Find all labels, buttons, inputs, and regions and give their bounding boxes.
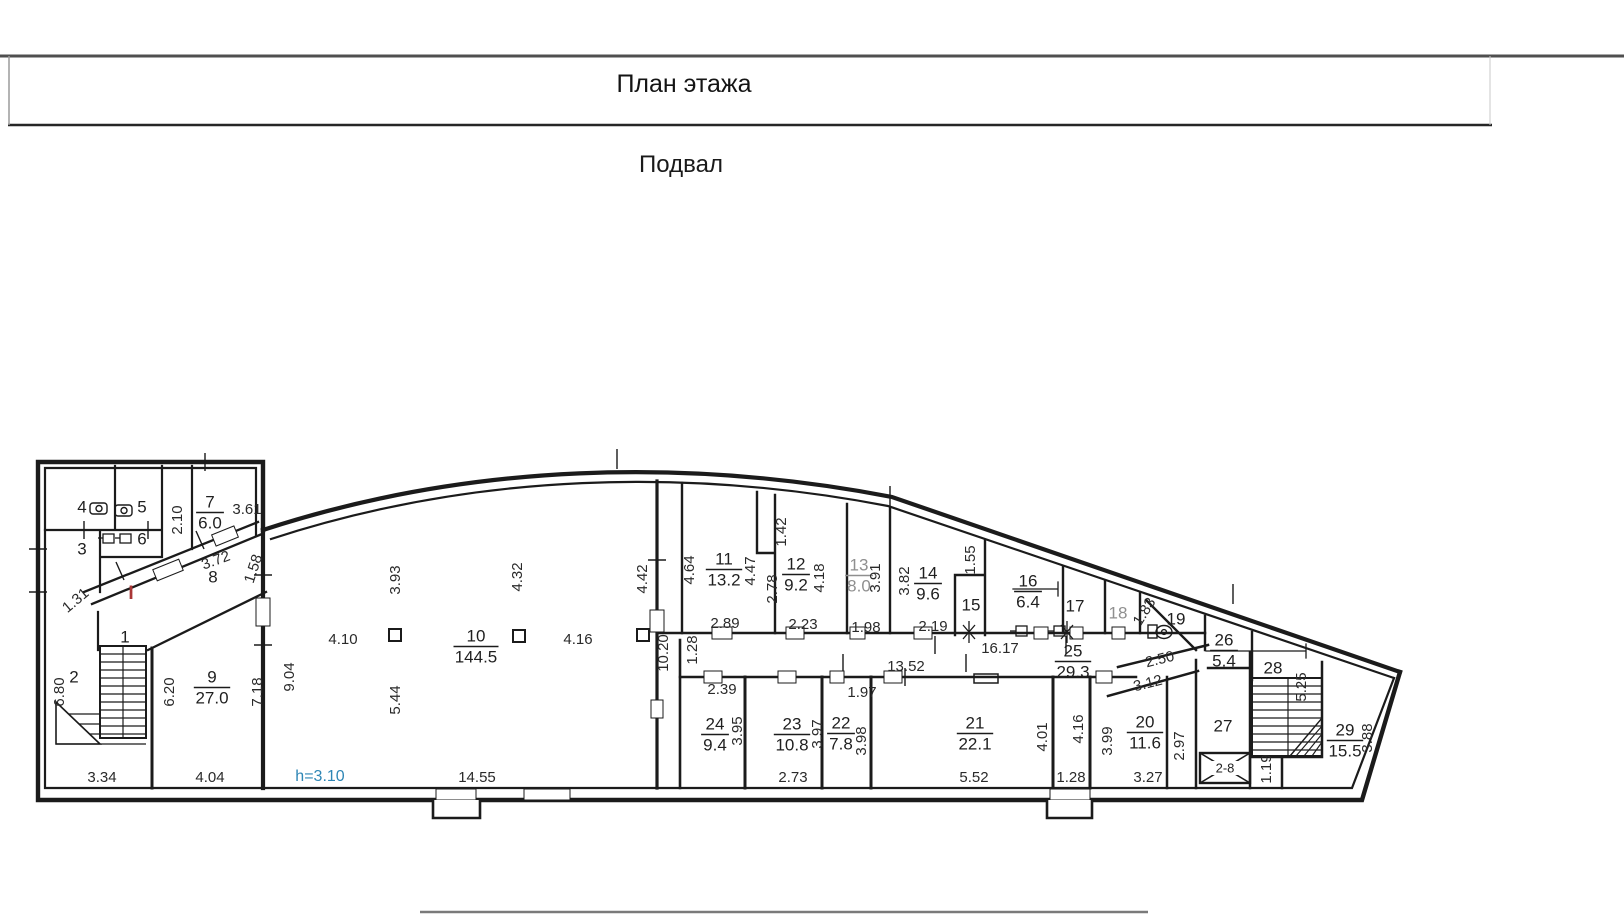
door-opening bbox=[1034, 627, 1048, 639]
dimension-label-4.04: 4.04 bbox=[195, 769, 224, 786]
columns bbox=[389, 629, 649, 642]
dimension-label-1.28: 1.28 bbox=[684, 635, 701, 664]
elevator: 2-8 bbox=[1200, 753, 1250, 783]
dimension-label-3.88: 3.88 bbox=[1359, 723, 1376, 752]
right-staircase bbox=[1252, 678, 1322, 756]
room-label-4: 4 bbox=[77, 497, 86, 516]
stair-hatch-boundary bbox=[56, 702, 100, 744]
dimension-label-2.39: 2.39 bbox=[707, 681, 736, 698]
room-label-11: 11 bbox=[715, 549, 733, 568]
room-label-6: 6 bbox=[137, 529, 146, 548]
room-label-10: 10 bbox=[467, 626, 486, 645]
dimension-label-4.42: 4.42 bbox=[634, 564, 651, 593]
dimension-label-3.82: 3.82 bbox=[896, 566, 913, 595]
dimension-label-2.89: 2.89 bbox=[710, 615, 739, 632]
room-area-29: 15.5 bbox=[1328, 741, 1361, 760]
dimension-label-3.27: 3.27 bbox=[1133, 769, 1162, 786]
room-label-16: 16 bbox=[1019, 571, 1038, 590]
dimension-label-14.55: 14.55 bbox=[458, 769, 496, 786]
room-label-25: 25 bbox=[1064, 641, 1083, 660]
dimension-leader-lines bbox=[1013, 582, 1306, 658]
column-icon bbox=[389, 629, 401, 641]
dimension-label-4.16: 4.16 bbox=[1070, 714, 1087, 743]
dimension-label-2.19: 2.19 bbox=[918, 618, 947, 635]
wall-niche bbox=[974, 674, 998, 683]
room-area-7: 6.0 bbox=[198, 513, 222, 532]
room-label-14: 14 bbox=[919, 563, 938, 582]
dimension-label-2.50: 2.50 bbox=[1144, 648, 1176, 672]
corridor-walls bbox=[657, 633, 1208, 696]
toilet-icon bbox=[115, 505, 132, 516]
toilet-icon bbox=[96, 506, 102, 512]
threshold bbox=[524, 789, 570, 800]
dimension-label-1.83: 1.83 bbox=[1130, 595, 1160, 629]
room-label-5: 5 bbox=[137, 497, 146, 516]
dimension-label-5.25: 5.25 bbox=[1293, 672, 1310, 701]
room-area-26: 5.4 bbox=[1212, 651, 1236, 670]
room-label-13: 13 bbox=[850, 555, 869, 574]
dimension-label-7.18: 7.18 bbox=[249, 677, 266, 706]
room-label-29: 29 bbox=[1336, 720, 1355, 739]
room-label-3: 3 bbox=[77, 539, 86, 558]
room-label-20: 20 bbox=[1136, 712, 1155, 731]
dimension-label-2.10: 2.10 bbox=[169, 505, 186, 534]
dimension-label-5.52: 5.52 bbox=[959, 769, 988, 786]
room-label-19: 19 bbox=[1167, 609, 1186, 628]
dimension-label-1.19: 1.19 bbox=[1258, 754, 1275, 783]
room-area-25: 29.3 bbox=[1056, 662, 1089, 681]
dimension-label-3.98: 3.98 bbox=[853, 726, 870, 755]
column-icon bbox=[513, 630, 525, 642]
dimension-label-4.01: 4.01 bbox=[1034, 722, 1051, 751]
dimension-label-4.10: 4.10 bbox=[328, 631, 357, 648]
dimension-label-1.97: 1.97 bbox=[847, 684, 876, 701]
dimension-label-3.97: 3.97 bbox=[809, 719, 826, 748]
room-label-1: 1 bbox=[120, 627, 129, 646]
room-label-23: 23 bbox=[783, 714, 802, 733]
room-label-2: 2 bbox=[69, 667, 78, 686]
threshold bbox=[1050, 789, 1090, 800]
dimension-label-3.93: 3.93 bbox=[387, 565, 404, 594]
column-icon bbox=[637, 629, 649, 641]
dimension-label-9.04: 9.04 bbox=[281, 662, 298, 691]
threshold bbox=[436, 789, 476, 800]
room-label-26: 26 bbox=[1215, 630, 1234, 649]
room-area-20: 11.6 bbox=[1129, 733, 1161, 752]
dimension-label-1.42: 1.42 bbox=[773, 517, 790, 546]
room-area-9: 27.0 bbox=[195, 688, 228, 707]
dimension-label-3.34: 3.34 bbox=[87, 769, 116, 786]
elevator-floors-label: 2-8 bbox=[1216, 760, 1235, 775]
dimension-label-16.17: 16.17 bbox=[981, 640, 1019, 657]
dimension-label-4.64: 4.64 bbox=[681, 555, 698, 584]
stair-hatch-lines bbox=[1296, 726, 1322, 756]
toilet-icon bbox=[90, 503, 107, 514]
ceiling-height-note: h=3.10 bbox=[295, 768, 344, 785]
floor-subtitle: Подвал bbox=[639, 151, 723, 178]
sink-icon bbox=[1016, 626, 1027, 636]
room-label-7: 7 bbox=[205, 492, 214, 511]
red-entry-mark: I bbox=[128, 583, 133, 604]
diagonal-corridor-walls bbox=[84, 522, 266, 650]
room-area-11: 13.2 bbox=[707, 570, 740, 589]
room-label-12: 12 bbox=[787, 554, 806, 573]
room-area-10: 144.5 bbox=[455, 647, 498, 666]
room-area-21: 22.1 bbox=[958, 734, 991, 753]
dimension-label-2.73: 2.73 bbox=[778, 769, 807, 786]
dimension-label-2.97: 2.97 bbox=[1171, 731, 1188, 760]
floor-plan-canvas: План этажа Подвал bbox=[0, 0, 1624, 915]
dimension-label-3.95: 3.95 bbox=[729, 716, 746, 745]
room-area-12: 9.2 bbox=[784, 575, 808, 594]
entry-stoop bbox=[1047, 800, 1092, 818]
dimension-label-4.16: 4.16 bbox=[563, 631, 592, 648]
room-label-18: 18 bbox=[1109, 603, 1128, 622]
dimension-label-1.28: 1.28 bbox=[1056, 769, 1085, 786]
dimension-label-3.61: 3.61 bbox=[232, 501, 261, 518]
dimension-label-3.99: 3.99 bbox=[1099, 726, 1116, 755]
door-opening bbox=[651, 700, 663, 718]
door-opening bbox=[1112, 627, 1125, 639]
dimension-label-1.98: 1.98 bbox=[851, 619, 880, 636]
door-opening bbox=[256, 598, 270, 626]
door-opening bbox=[778, 671, 796, 683]
stairs-icon bbox=[1252, 678, 1322, 756]
sink-icon bbox=[120, 534, 131, 543]
room-label-21: 21 bbox=[966, 713, 985, 732]
left-staircase bbox=[56, 646, 146, 744]
room-area-14: 9.6 bbox=[916, 584, 940, 603]
dimension-label-4.47: 4.47 bbox=[742, 556, 759, 585]
room-label-9: 9 bbox=[207, 667, 216, 686]
dimension-label-2.78: 2.78 bbox=[764, 574, 781, 603]
room-label-22: 22 bbox=[832, 713, 851, 732]
room-label-27: 27 bbox=[1214, 716, 1233, 735]
dimension-label-5.44: 5.44 bbox=[387, 685, 404, 714]
dimension-label-6.20: 6.20 bbox=[161, 677, 178, 706]
entry-protrusions bbox=[433, 800, 1092, 818]
door-opening bbox=[830, 671, 844, 683]
door-opening bbox=[650, 610, 664, 632]
dimension-label-4.32: 4.32 bbox=[509, 562, 526, 591]
stair-treads bbox=[1252, 678, 1322, 756]
page-header: План этажа Подвал bbox=[0, 56, 1624, 178]
dimension-label-13.52: 13.52 bbox=[887, 658, 925, 675]
room-label-15: 15 bbox=[962, 595, 981, 614]
sink-icon bbox=[103, 534, 114, 543]
toilet-icon bbox=[121, 508, 127, 514]
room-label-28: 28 bbox=[1264, 658, 1283, 677]
room-area-16: 6.4 bbox=[1016, 592, 1040, 611]
room-area-23: 10.8 bbox=[775, 735, 808, 754]
dimension-label-6.80: 6.80 bbox=[51, 677, 68, 706]
room-label-17: 17 bbox=[1066, 596, 1085, 615]
stair-treads bbox=[100, 646, 146, 738]
door-opening bbox=[1096, 671, 1112, 683]
dimension-label-2.23: 2.23 bbox=[788, 616, 817, 633]
entry-stoop bbox=[433, 800, 480, 818]
dimension-label-1.55: 1.55 bbox=[962, 545, 979, 574]
page-title: План этажа bbox=[616, 70, 751, 98]
room-area-22: 7.8 bbox=[829, 734, 853, 753]
dimension-label-3.91: 3.91 bbox=[867, 563, 884, 592]
room-area-24: 9.4 bbox=[703, 735, 727, 754]
dimension-label-3.12: 3.12 bbox=[1132, 672, 1164, 696]
dimension-label-4.18: 4.18 bbox=[811, 563, 828, 592]
room-label-24: 24 bbox=[706, 714, 725, 733]
dimension-label-10.20: 10.20 bbox=[655, 634, 672, 672]
